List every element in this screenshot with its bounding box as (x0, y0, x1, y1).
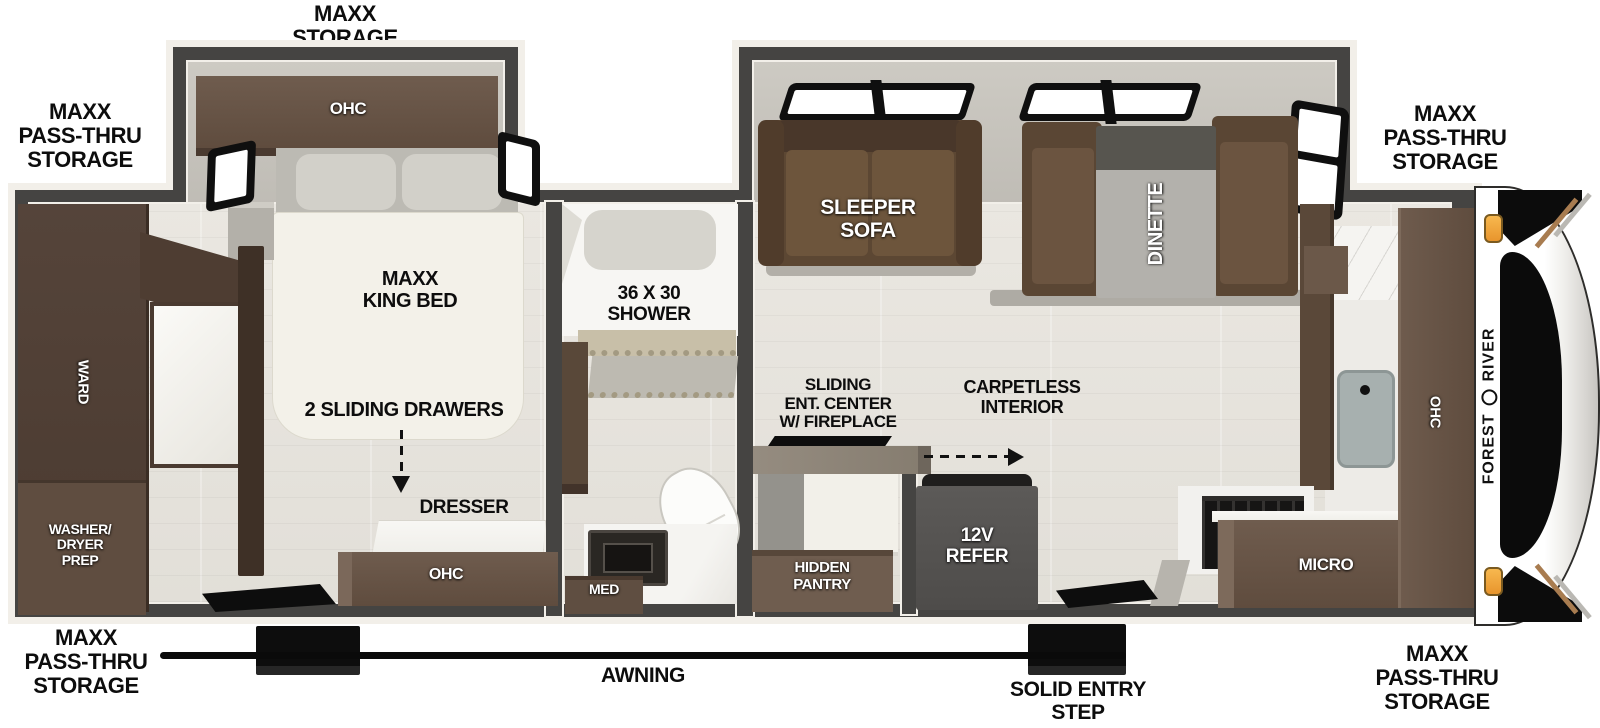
sofa-back (778, 120, 962, 152)
sofa-arm-right (956, 120, 982, 266)
kitchen-sink (1337, 370, 1395, 468)
vanity-sink-basin (603, 543, 653, 573)
wardrobe-mirror (150, 302, 246, 468)
front-cap: FOREST RIVER (1474, 186, 1600, 626)
shower-pan (584, 210, 716, 270)
rear-entry-step (256, 626, 360, 675)
living-window-right (1018, 83, 1202, 121)
awning-line (160, 652, 1126, 659)
refer-label: 12V REFER (946, 526, 1008, 568)
ent-center-label: SLIDING ENT. CENTER W/ FIREPLACE (779, 376, 896, 432)
bathroom-wall-right (737, 202, 753, 616)
label-maxx-passthru-left: MAXX PASS-THRU STORAGE (18, 100, 141, 173)
drawers-arrow-line (400, 430, 403, 476)
ent-center-nook-right (804, 474, 898, 556)
hidden-pantry-label: HIDDEN PANTRY (793, 560, 851, 593)
label-awning: AWNING (601, 664, 685, 687)
sliding-drawers-label: 2 SLIDING DRAWERS (305, 399, 504, 421)
shower-pan-shadow (562, 204, 582, 284)
arrow-down-icon (392, 476, 410, 493)
shower-label: 36 X 30 SHOWER (607, 284, 690, 326)
dinette-label: DINETTE (1145, 183, 1167, 266)
bed-pillow-left (296, 154, 396, 210)
faucet-icon (1360, 385, 1370, 395)
dinette-bench-left (1022, 122, 1102, 296)
cap-windshield-decal (1500, 252, 1562, 558)
bedroom-ohc-label: OHC (330, 100, 367, 119)
washer-dryer-label: WASHER/ DRYER PREP (49, 522, 112, 568)
dinette-bench-right-cushion (1220, 142, 1288, 284)
ent-center-counter (753, 446, 931, 474)
ent-center-nook-left (758, 474, 804, 552)
dinette-bench-left-cushion (1032, 148, 1094, 284)
kitchen-divider-cabinet (1304, 246, 1348, 294)
label-maxx-passthru-bottom-right: MAXX PASS-THRU STORAGE (1375, 642, 1498, 715)
sofa-arm-left (758, 120, 784, 266)
brand-word-forest: FOREST (1480, 414, 1498, 485)
bed-pillow-right (402, 154, 502, 210)
med-label: MED (589, 582, 619, 597)
shower-door-1 (578, 330, 736, 356)
king-bed-label: MAXX KING BED (363, 268, 458, 312)
sleeper-sofa-label: SLEEPER SOFA (820, 196, 915, 242)
bedroom-window-left (206, 140, 256, 213)
forest-river-emblem-icon (1481, 390, 1497, 406)
dresser-label: DRESSER (419, 498, 508, 519)
arrow-right-icon (1008, 448, 1024, 466)
living-window-left (778, 83, 976, 121)
floorplan: MAXX STORAGE MAXX PASS-THRU STORAGE MAXX… (0, 0, 1600, 728)
dresser-top (372, 520, 546, 556)
dinette-bench-right (1212, 116, 1298, 296)
bath-shelf (562, 342, 588, 494)
forest-river-wordmark: FOREST RIVER (1480, 328, 1498, 485)
solid-entry-step (1028, 624, 1126, 675)
bedroom-window-right-pane (506, 141, 532, 197)
refer-wall (902, 470, 916, 614)
wardrobe-door-edge (238, 246, 264, 576)
bedroom-window-left-pane (214, 149, 248, 202)
carpetless-label: CARPETLESS INTERIOR (963, 378, 1080, 418)
kitchen-ohc-label: OHC (1426, 396, 1443, 428)
bedroom-window-right (498, 131, 540, 207)
cap-brand: FOREST RIVER (1472, 188, 1506, 624)
label-maxx-passthru-bottom-left: MAXX PASS-THRU STORAGE (24, 626, 147, 699)
dresser-ohc-label: OHC (429, 566, 463, 584)
carpetless-arrow-line (924, 455, 1008, 458)
label-solid-entry-step: SOLID ENTRY STEP (1010, 678, 1146, 724)
label-maxx-passthru-top-right: MAXX PASS-THRU STORAGE (1383, 102, 1506, 175)
ward-label: WARD (74, 360, 91, 404)
dinette-side-window-pane-top (1297, 108, 1342, 157)
brand-word-river: RIVER (1480, 328, 1498, 382)
shower-door-2 (588, 356, 738, 398)
micro-label: MICRO (1299, 556, 1354, 575)
sleeper-sofa (758, 120, 982, 266)
